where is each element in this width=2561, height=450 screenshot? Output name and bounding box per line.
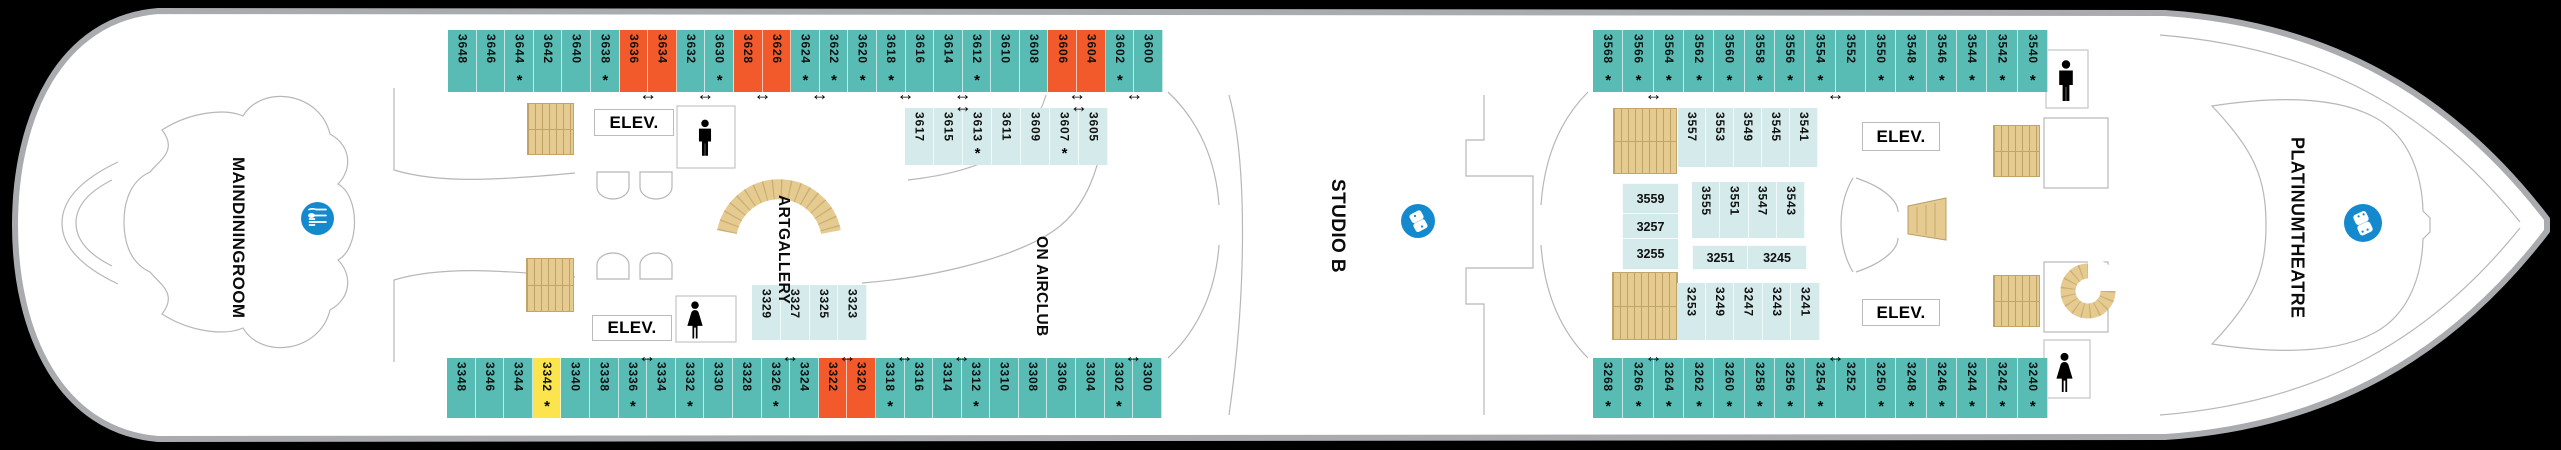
connecting-asterisk: * (1666, 73, 1672, 88)
cabin-number: 3566 (1631, 34, 1645, 64)
cabin-number: 3632 (684, 34, 698, 64)
cabin-number: 3253 (1684, 287, 1698, 317)
connecting-asterisk: * (1636, 73, 1642, 88)
cabin-number: 3330 (712, 362, 726, 392)
venue-studio-b: STUDIO B (1312, 176, 1362, 276)
cabin-row-right-inner-a: 35573553354935453541 (1678, 108, 1818, 167)
cabin-3560: 3560* (1714, 30, 1744, 92)
cabin-row-top-left: 364836463644*364236403638*36363634363236… (448, 30, 1163, 92)
venue-label-line: MAIN (229, 157, 247, 202)
venue-main-dining-room: MAINDININGROOM (193, 178, 283, 298)
cabin-number: 3266 (1631, 362, 1645, 392)
cabin-3332: 3332* (676, 358, 705, 418)
connecting-asterisk: * (1116, 399, 1122, 414)
cabin-number: 3268 (1601, 362, 1615, 392)
cabin-number: 3240 (2026, 362, 2040, 392)
cabin-row-bottom-right: 3268*3266*3264*3262*3260*3258*3256*3254*… (1593, 358, 2048, 418)
connecting-asterisk: * (1696, 73, 1702, 88)
cabin-3244: 3244* (1957, 358, 1987, 418)
cabin-3607: 3607* (1050, 108, 1079, 165)
connecting-door-arrow: ↔ (1125, 85, 1143, 103)
cabin-3256: 3256* (1775, 358, 1805, 418)
connecting-asterisk: * (1117, 73, 1123, 88)
cabin-number: 3243 (1770, 287, 1784, 317)
cabin-number: 3636 (627, 34, 641, 64)
cabin-3322: 3322 (819, 358, 848, 418)
connecting-door-arrow: ↔ (754, 85, 772, 103)
connecting-asterisk: * (1605, 399, 1611, 414)
cabin-number: 3616 (913, 34, 927, 64)
cabin-number: 3262 (1692, 362, 1706, 392)
cabin-3564: 3564* (1654, 30, 1684, 92)
cabin-3338: 3338 (590, 358, 619, 418)
cabin-number: 3558 (1753, 34, 1767, 64)
fan-stairs (1908, 198, 1946, 240)
cabin-number: 3336 (626, 362, 640, 392)
cabin-number: 3544 (1965, 34, 1979, 64)
cabin-3566: 3566* (1623, 30, 1653, 92)
cabin-number: 3540 (2026, 34, 2040, 64)
cabin-number: 3614 (941, 34, 955, 64)
cabin-3610: 3610 (991, 30, 1020, 92)
cabin-3240: 3240* (2018, 358, 2048, 418)
cabin-number: 3334 (654, 362, 668, 392)
cabin-number: 3630 (713, 34, 727, 64)
venue-label-line: STUDIO B (1327, 179, 1347, 273)
cabin-number: 3310 (998, 362, 1012, 392)
cabin-number: 3611 (1000, 112, 1014, 141)
cabin-number: 3302 (1112, 362, 1126, 392)
cabin-3608: 3608 (1020, 30, 1049, 92)
cabin-3324: 3324 (790, 358, 819, 418)
cabin-number: 3549 (1741, 112, 1755, 142)
cabin-number: 3323 (846, 289, 860, 319)
cabin-number: 3559 (1637, 192, 1665, 206)
cabin-number: 3251 (1707, 251, 1735, 265)
cabin-row-top-right: 3568*3566*3564*3562*3560*3558*3556*3554*… (1593, 30, 2048, 92)
cabin-number: 3626 (770, 34, 784, 64)
connecting-door-arrow: ↔ (696, 85, 714, 103)
ice-skates-icon (1401, 204, 1435, 238)
cabin-3604: 3604 (1077, 30, 1106, 92)
cabin-3306: 3306 (1047, 358, 1076, 418)
cabin-number: 3612 (970, 34, 984, 64)
connecting-door-arrow: ↔ (953, 347, 971, 365)
cabin-number: 3300 (1141, 362, 1155, 392)
connecting-asterisk: * (517, 73, 523, 88)
cabin-3642: 3642 (534, 30, 563, 92)
connecting-asterisk: * (974, 73, 980, 88)
stairs (1613, 108, 1677, 174)
mens-restroom-icon (2057, 60, 2075, 102)
venue-art-gallery: ARTGALLERY (758, 205, 808, 295)
connecting-asterisk: * (975, 146, 981, 161)
cabin-number: 3241 (1799, 287, 1813, 317)
cabin-3547: 3547 (1749, 182, 1777, 238)
cabin-row-top-left-inner: 361736153613*361136093607*3605↔↔ (905, 108, 1108, 165)
connecting-asterisk: * (1878, 399, 1884, 414)
connecting-asterisk: * (1757, 73, 1763, 88)
cabin-number: 3568 (1601, 34, 1615, 64)
connecting-asterisk: * (1757, 399, 1763, 414)
cabin-3346: 3346 (476, 358, 505, 418)
cabin-number: 3610 (999, 34, 1013, 64)
cabin-number: 3244 (1965, 362, 1979, 392)
cabin-3644: 3644* (505, 30, 534, 92)
cabin-number: 3342 (540, 362, 554, 392)
cabin-3620: 3620* (848, 30, 877, 92)
cabin-number: 3344 (511, 362, 525, 392)
cabin-number: 3615 (942, 112, 956, 142)
connecting-asterisk: * (1696, 399, 1702, 414)
cabin-number: 3250 (1874, 362, 1888, 392)
cabin-number: 3249 (1713, 287, 1727, 317)
cabin-number: 3606 (1056, 34, 1070, 64)
theatre-masks-icon (2344, 204, 2382, 242)
cabin-3614: 3614 (934, 30, 963, 92)
womens-restroom-icon (2055, 352, 2074, 393)
cabin-3554: 3554* (1805, 30, 1835, 92)
cabin-3628: 3628 (734, 30, 763, 92)
cabin-number: 3547 (1756, 186, 1770, 216)
cabin-3260: 3260* (1714, 358, 1744, 418)
cabin-number: 3316 (912, 362, 926, 392)
cabin-number: 3554 (1813, 34, 1827, 64)
cabin-number: 3648 (455, 34, 469, 64)
connecting-asterisk: * (1727, 73, 1733, 88)
cabin-number: 3258 (1753, 362, 1767, 392)
cabin-3312: 3312* (962, 358, 991, 418)
cabin-number: 3326 (769, 362, 783, 392)
cabin-3314: 3314 (933, 358, 962, 418)
connecting-asterisk: * (1969, 399, 1975, 414)
cabin-number: 3257 (1637, 220, 1665, 234)
connecting-door-arrow: ↔ (896, 347, 914, 365)
cabin-3249: 3249 (1706, 283, 1735, 340)
cabin-3253: 3253 (1677, 283, 1706, 340)
cabin-3611: 3611 (992, 108, 1021, 165)
cabin-number: 3555 (1699, 186, 1713, 216)
connecting-asterisk: * (2000, 399, 2006, 414)
venue-label-line: ON AIR (1033, 236, 1049, 292)
cabin-3320: 3320 (847, 358, 876, 418)
cabin-number: 3557 (1685, 112, 1699, 142)
cabin-3646: 3646 (477, 30, 506, 92)
cabin-3268: 3268* (1593, 358, 1623, 418)
cabin-number: 3322 (826, 362, 840, 392)
connecting-asterisk: * (1787, 399, 1793, 414)
cabin-row-bottom-left: 3348334633443342*334033383336*33343332*3… (447, 358, 1162, 418)
connecting-asterisk: * (1818, 399, 1824, 414)
cabin-number: 3622 (827, 34, 841, 64)
connecting-door-arrow: ↔ (781, 347, 799, 365)
stairs (526, 258, 574, 312)
connecting-asterisk: * (1818, 73, 1824, 88)
stairs (1993, 125, 2040, 177)
elevator-label: ELEV. (592, 315, 672, 341)
elevator-label: ELEV. (1862, 122, 1940, 151)
cabin-number: 3304 (1083, 362, 1097, 392)
connecting-asterisk: * (544, 399, 550, 414)
cabin-3258: 3258* (1745, 358, 1775, 418)
cabin-3562: 3562* (1684, 30, 1714, 92)
connecting-door-arrow: ↔ (811, 85, 829, 103)
connecting-asterisk: * (831, 73, 837, 88)
cabin-3551: 3551 (1720, 182, 1748, 238)
cabin-3546: 3546* (1927, 30, 1957, 92)
connecting-asterisk: * (1909, 399, 1915, 414)
connecting-asterisk: * (2000, 73, 2006, 88)
cabin-3638: 3638* (591, 30, 620, 92)
venue-platinum-theatre: PLATINUMTHEATRE (2267, 173, 2327, 283)
cabin-number: 3254 (1813, 362, 1827, 392)
cabin-row-right-inner-b: 3555355135473543 (1692, 182, 1805, 238)
cabin-3543: 3543 (1777, 182, 1805, 238)
cabin-3262: 3262* (1684, 358, 1714, 418)
cabin-number: 3618 (884, 34, 898, 64)
cabin-3632: 3632 (677, 30, 706, 92)
cabin-number: 3602 (1113, 34, 1127, 64)
cabin-number: 3312 (969, 362, 983, 392)
cabin-3622: 3622* (820, 30, 849, 92)
cabin-number: 3248 (1904, 362, 1918, 392)
venue-label-line: CLUB (1033, 292, 1049, 337)
venue-label-line: DINING (229, 202, 247, 264)
cabin-3630: 3630* (705, 30, 734, 92)
cabin-number: 3604 (1084, 34, 1098, 64)
cabin-number: 3640 (570, 34, 584, 64)
cabin-number: 3607 (1058, 112, 1072, 142)
cabin-3323: 3323 (838, 285, 867, 340)
cabin-3555: 3555 (1692, 182, 1720, 238)
connecting-door-arrow: ↔ (1645, 85, 1663, 103)
cabin-number: 3306 (1055, 362, 1069, 392)
cabin-number: 3332 (683, 362, 697, 392)
cabin-3300: 3300 (1133, 358, 1162, 418)
cabin-number: 3324 (797, 362, 811, 392)
cabin-number: 3646 (484, 34, 498, 64)
cabin-3266: 3266* (1623, 358, 1653, 418)
cabin-number: 3644 (512, 34, 526, 64)
cabin-3251: 3251 (1692, 245, 1749, 270)
cabin-number: 3600 (1142, 34, 1156, 64)
cabin-3243: 3243 (1763, 283, 1792, 340)
cabin-3640: 3640 (562, 30, 591, 92)
connecting-asterisk: * (1062, 146, 1068, 161)
cabin-3308: 3308 (1019, 358, 1048, 418)
venue-label-line: GALLERY (775, 228, 791, 304)
cabin-number: 3247 (1741, 287, 1755, 317)
cabin-3248: 3248* (1896, 358, 1926, 418)
cabin-number: 3550 (1874, 34, 1888, 64)
connecting-asterisk: * (860, 73, 866, 88)
stairs (1993, 275, 2040, 327)
cabin-3330: 3330 (704, 358, 733, 418)
cabin-3348: 3348 (447, 358, 476, 418)
connecting-door-arrow: ↔ (1827, 85, 1845, 103)
cabin-number: 3551 (1727, 186, 1741, 216)
cabin-number: 3642 (541, 34, 555, 64)
venue-label-line: THEATRE (2287, 232, 2306, 318)
cabin-number: 3562 (1692, 34, 1706, 64)
cabin-3241: 3241 (1791, 283, 1820, 340)
cabin-3636: 3636 (620, 30, 649, 92)
cabin-3600: 3600 (1134, 30, 1163, 92)
connecting-asterisk: * (773, 399, 779, 414)
cabin-number: 3564 (1662, 34, 1676, 64)
connecting-asterisk: * (1666, 399, 1672, 414)
connecting-asterisk: * (1727, 399, 1733, 414)
cabin-number: 3246 (1935, 362, 1949, 392)
cabin-3559: 3559 (1622, 183, 1679, 215)
cabin-3304: 3304 (1076, 358, 1105, 418)
cabin-3245: 3245 (1747, 245, 1807, 270)
cabin-number: 3242 (1995, 362, 2009, 392)
cabin-3648: 3648 (448, 30, 477, 92)
cabin-number: 3613 (971, 112, 985, 142)
cabin-number: 3314 (940, 362, 954, 392)
connecting-asterisk: * (1969, 73, 1975, 88)
cabin-3557: 3557 (1678, 108, 1706, 167)
cabin-number: 3560 (1722, 34, 1736, 64)
cabin-number: 3348 (454, 362, 468, 392)
connecting-door-arrow: ↔ (639, 85, 657, 103)
cabin-number: 3552 (1844, 34, 1858, 64)
connecting-asterisk: * (888, 73, 894, 88)
cabin-3616: 3616 (906, 30, 935, 92)
cabin-3617: 3617 (905, 108, 934, 165)
connecting-door-arrow: ↔ (838, 347, 856, 365)
connecting-asterisk: * (803, 73, 809, 88)
deck-plan: 364836463644*364236403638*36363634363236… (0, 0, 2561, 450)
cabin-3318: 3318* (876, 358, 905, 418)
cabin-3612: 3612* (963, 30, 992, 92)
cabin-number: 3325 (817, 289, 831, 319)
venue-on-air-club: ON AIRCLUB (1016, 246, 1066, 326)
cabin-number: 3548 (1904, 34, 1918, 64)
connecting-asterisk: * (2030, 73, 2036, 88)
cabin-3544: 3544* (1957, 30, 1987, 92)
cabin-3541: 3541 (1790, 108, 1818, 167)
cabin-3626: 3626 (763, 30, 792, 92)
connecting-asterisk: * (717, 73, 723, 88)
cabin-number: 3255 (1637, 247, 1665, 261)
dining-icon (301, 202, 334, 235)
cabin-3605: 3605 (1079, 108, 1108, 165)
cabin-number: 3638 (598, 34, 612, 64)
cabin-3548: 3548* (1896, 30, 1926, 92)
cabin-3634: 3634 (648, 30, 677, 92)
cabin-number: 3624 (798, 34, 812, 64)
cabin-number: 3260 (1722, 362, 1736, 392)
connecting-asterisk: * (1939, 73, 1945, 88)
cabin-number: 3256 (1783, 362, 1797, 392)
cabin-number: 3628 (741, 34, 755, 64)
mens-restroom-icon (697, 119, 713, 157)
cabin-number: 3542 (1995, 34, 2009, 64)
cabin-number: 3605 (1087, 112, 1101, 142)
connecting-door-arrow: ↔ (1645, 347, 1663, 365)
cabin-3247: 3247 (1734, 283, 1763, 340)
cabin-number: 3617 (913, 112, 927, 142)
cabin-number: 3308 (1026, 362, 1040, 392)
ship-hull (15, 11, 2547, 439)
cabin-3246: 3246* (1927, 358, 1957, 418)
connecting-asterisk: * (973, 399, 979, 414)
cabin-number: 3556 (1783, 34, 1797, 64)
cabin-number: 3608 (1027, 34, 1041, 64)
cabin-3250: 3250* (1866, 358, 1896, 418)
cabin-3556: 3556* (1775, 30, 1805, 92)
cabin-3542: 3542* (1987, 30, 2017, 92)
cabin-number: 3546 (1935, 34, 1949, 64)
cabin-number: 3338 (597, 362, 611, 392)
cabin-3340: 3340 (561, 358, 590, 418)
connecting-asterisk: * (630, 399, 636, 414)
cabin-3252: 3252 (1836, 358, 1866, 418)
cabin-3242: 3242* (1987, 358, 2017, 418)
cabin-3334: 3334 (647, 358, 676, 418)
cabin-3326: 3326* (762, 358, 791, 418)
cabin-3264: 3264* (1654, 358, 1684, 418)
cabin-3310: 3310 (990, 358, 1019, 418)
cabin-number: 3634 (655, 34, 669, 64)
connecting-asterisk: * (1605, 73, 1611, 88)
venue-label-line: ART (775, 195, 791, 228)
cabin-3302: 3302* (1105, 358, 1134, 418)
connecting-asterisk: * (602, 73, 608, 88)
elevator-label: ELEV. (1862, 299, 1940, 326)
connecting-asterisk: * (1787, 73, 1793, 88)
venue-label-line: PLATINUM (2287, 137, 2306, 232)
cabin-3558: 3558* (1745, 30, 1775, 92)
hull-and-walls (0, 0, 2561, 450)
connecting-asterisk: * (1878, 73, 1884, 88)
cabin-number: 3543 (1784, 186, 1798, 216)
connecting-asterisk: * (2030, 399, 2036, 414)
cabin-number: 3328 (740, 362, 754, 392)
cabin-number: 3553 (1713, 112, 1727, 142)
cabin-number: 3318 (883, 362, 897, 392)
connecting-door-arrow: ↔ (954, 97, 972, 115)
connecting-asterisk: * (687, 399, 693, 414)
stairs (527, 103, 574, 155)
cabin-3553: 3553 (1706, 108, 1734, 167)
connecting-door-arrow: ↔ (1124, 347, 1142, 365)
cabin-3613: 3613* (963, 108, 992, 165)
venue-label-line: ROOM (229, 264, 247, 318)
cabin-3615: 3615 (934, 108, 963, 165)
cabin-3336: 3336* (619, 358, 648, 418)
cabin-3328: 3328 (733, 358, 762, 418)
cabin-3552: 3552 (1836, 30, 1866, 92)
cabin-3606: 3606 (1048, 30, 1077, 92)
cabin-3609: 3609 (1021, 108, 1050, 165)
cabin-3325: 3325 (810, 285, 839, 340)
connecting-door-arrow: ↔ (638, 347, 656, 365)
cabin-3545: 3545 (1762, 108, 1790, 167)
cabin-number: 3264 (1662, 362, 1676, 392)
cabin-3624: 3624* (791, 30, 820, 92)
cabin-number: 3252 (1844, 362, 1858, 392)
cabin-3344: 3344 (504, 358, 533, 418)
cabin-3316: 3316 (905, 358, 934, 418)
cabin-number: 3346 (483, 362, 497, 392)
cabin-3257: 3257 (1622, 213, 1679, 240)
cabin-3255: 3255 (1622, 238, 1679, 270)
connecting-asterisk: * (1909, 73, 1915, 88)
cabin-number: 3609 (1029, 112, 1043, 142)
